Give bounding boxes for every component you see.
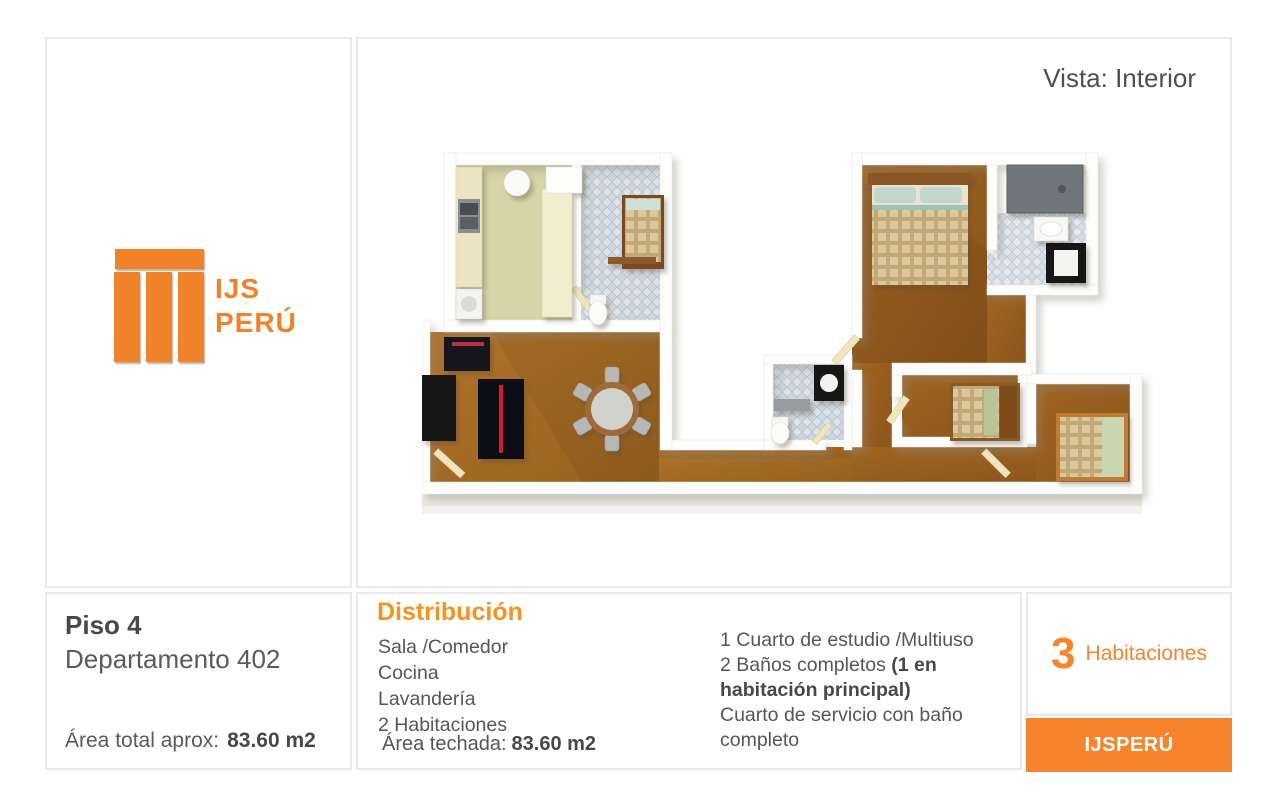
roofed-area: Área techada:83.60 m2 [382, 733, 596, 756]
water-heater-icon [504, 170, 530, 196]
distribution-list: Sala /Comedor Cocina Lavandería 2 Habita… [378, 634, 508, 738]
bedroom3-bed-icon [1056, 413, 1128, 481]
view-label: Vista: Interior [1043, 63, 1196, 94]
distribution-list-2: 1 Cuarto de estudio /Multiuso 2 Baños co… [720, 628, 1022, 753]
brand-logo: IJS PERÚ [47, 39, 350, 586]
logo-text-line1: IJS [215, 272, 297, 306]
apartment-label: Departamento 402 [65, 644, 280, 675]
master-bed-icon [868, 173, 972, 285]
rooms-count: 3 [1051, 629, 1075, 679]
distribution-title: Distribución [377, 598, 523, 627]
floor-label: Piso 4 [65, 610, 142, 641]
rooms-label: Habitaciones [1086, 642, 1207, 666]
appliance-icon [546, 167, 582, 193]
shelf-icon [608, 257, 656, 264]
toilet-icon [771, 417, 789, 444]
sink-icon [1034, 217, 1068, 241]
floorplan-panel: Vista: Interior [356, 37, 1232, 588]
vanity-cabinet-icon [1046, 243, 1086, 283]
building-logo-icon [115, 249, 205, 374]
roofed-area-label: Área techada: [382, 733, 507, 755]
bathroom-sink-icon [814, 365, 844, 401]
washing-machine-icon [456, 289, 482, 319]
rooms-badge-panel: 3 Habitaciones [1026, 592, 1232, 716]
distribution-item: Cuarto de servicio con baño completo [720, 703, 1022, 753]
kitchen-cabinets-icon [456, 167, 482, 287]
distribution-panel: Distribución Sala /Comedor Cocina Lavand… [356, 592, 1022, 770]
ground-strip [422, 494, 1142, 506]
distribution-item: 2 Baños completos (1 en habitación princ… [720, 653, 1022, 703]
brand-button[interactable]: IJSPERÚ [1026, 718, 1232, 772]
total-area: Área total aprox:83.60 m2 [65, 729, 316, 753]
sofa-icon [478, 379, 524, 459]
armchair-icon [422, 375, 456, 441]
logo-panel: IJS PERÚ [45, 37, 352, 588]
total-area-value: 83.60 m2 [227, 729, 316, 752]
logo-text-line2: PERÚ [215, 306, 297, 340]
toilet-icon [589, 295, 607, 325]
floorplan-render [422, 137, 1167, 532]
distribution-item: Sala /Comedor [378, 634, 508, 660]
shower-icon [1007, 165, 1083, 213]
distribution-item: 1 Cuarto de estudio /Multiuso [720, 628, 1022, 653]
total-area-label: Área total aprox: [65, 729, 219, 752]
bedroom2-bed-icon [950, 383, 1020, 441]
unit-info-panel: Piso 4 Departamento 402 Área total aprox… [45, 592, 352, 770]
distribution-item: Lavandería [378, 686, 508, 712]
distribution-item: Cocina [378, 660, 508, 686]
page: IJS PERÚ Vista: Interior [0, 0, 1280, 800]
logo-text: IJS PERÚ [215, 272, 297, 340]
kitchen-counter-icon [542, 189, 572, 317]
tv-unit-icon [444, 337, 490, 371]
bath-mat-icon [774, 399, 810, 411]
roofed-area-value: 83.60 m2 [512, 733, 597, 755]
